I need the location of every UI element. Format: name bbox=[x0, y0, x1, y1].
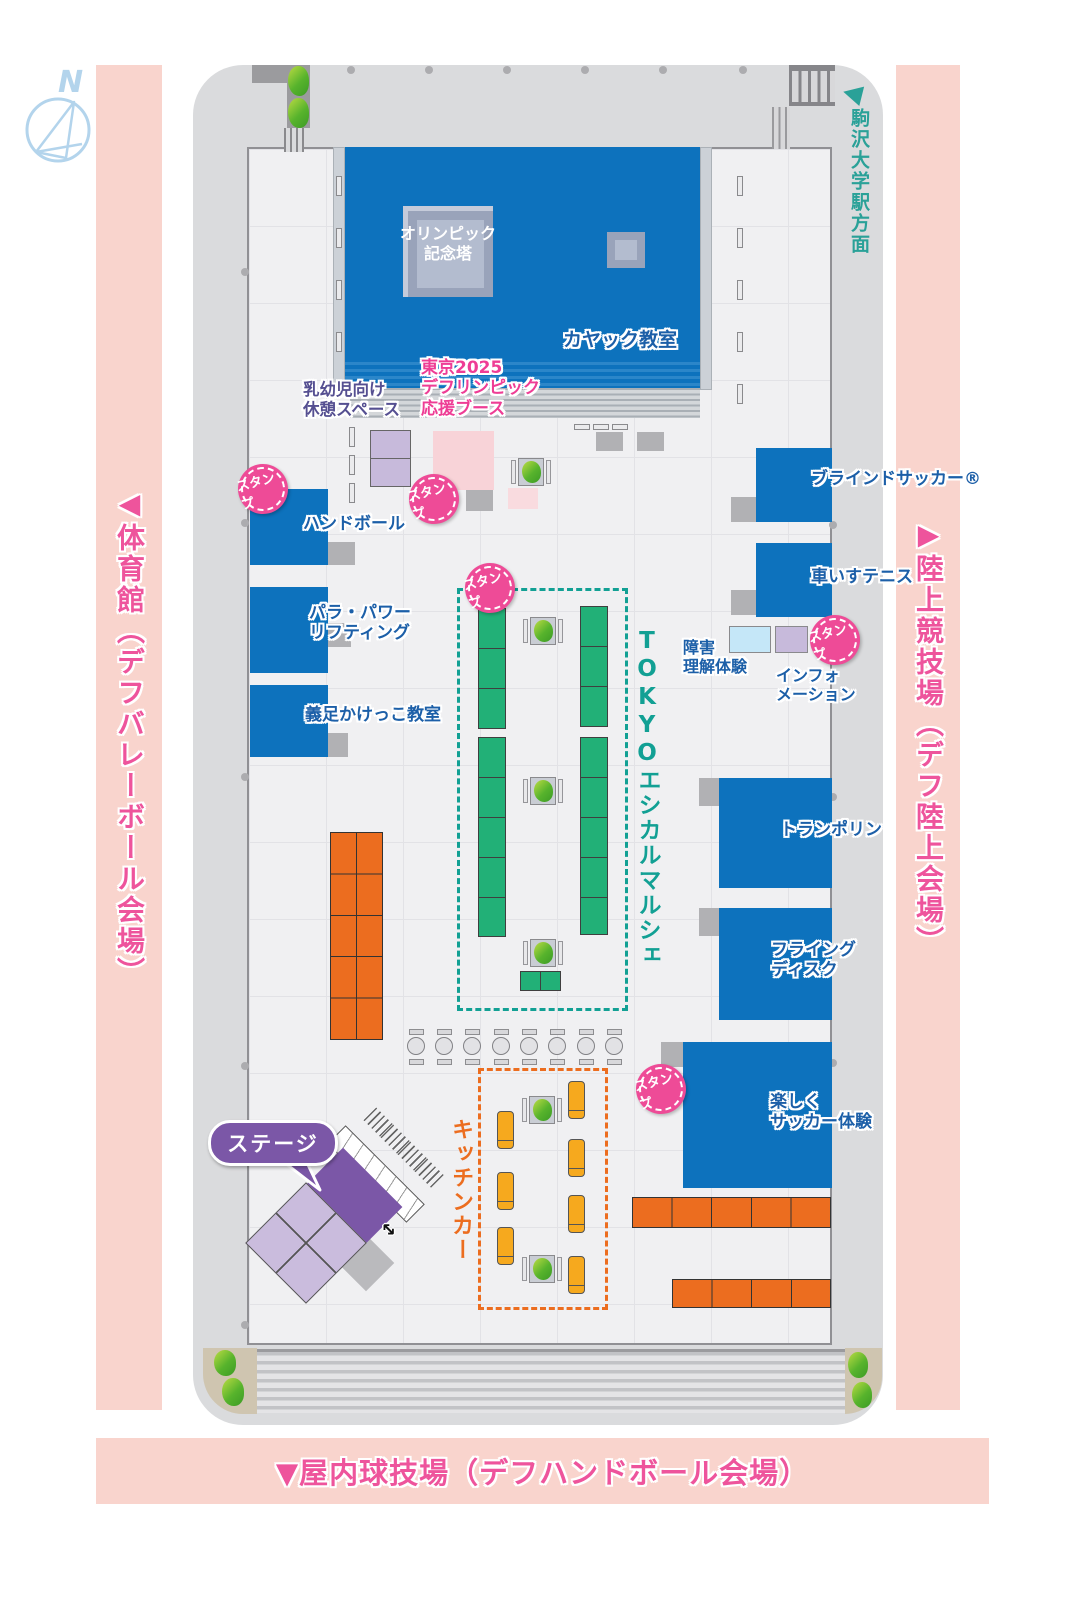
marche-stall-column bbox=[478, 608, 506, 729]
blind-soccer-label: ブラインドサッカー® bbox=[811, 469, 981, 489]
lamp-dot bbox=[347, 66, 355, 74]
prosthetic-running-label: 義足かけっこ教室 bbox=[305, 705, 441, 725]
booth-orange-block bbox=[330, 832, 383, 1040]
marche-stall-column bbox=[580, 606, 608, 727]
bench-icon bbox=[737, 228, 743, 248]
tree-icon bbox=[526, 936, 560, 970]
booth-information bbox=[775, 626, 808, 653]
stairs-icon bbox=[772, 107, 790, 149]
bush-icon bbox=[848, 1352, 868, 1378]
kitchen-car-icon bbox=[497, 1227, 514, 1265]
bush-icon bbox=[288, 66, 309, 96]
pond-deck bbox=[700, 147, 712, 390]
marche-stall-column bbox=[478, 737, 506, 937]
bush-icon bbox=[288, 98, 309, 128]
bench-icon bbox=[737, 384, 743, 404]
booth-shadow-tab bbox=[731, 497, 756, 522]
stairs-icon bbox=[789, 65, 835, 106]
booth-shadow-tab bbox=[699, 908, 719, 936]
kiosk-box bbox=[596, 432, 623, 451]
fun-soccer-label: 楽しく サッカー体験 bbox=[770, 1092, 872, 1133]
para-powerlifting-label: パラ・パワー リフティング bbox=[309, 603, 411, 644]
bottom-venue-label: ▼屋内球技場（デフハンドボール会場） bbox=[276, 1450, 809, 1492]
round-table-icon bbox=[462, 1029, 484, 1065]
round-table-icon bbox=[547, 1029, 569, 1065]
lamp-dot bbox=[739, 66, 747, 74]
round-table-icon bbox=[604, 1029, 626, 1065]
left-venue-label: ◀体育館（デフバレーボール会場） bbox=[109, 487, 149, 988]
round-table-icon bbox=[434, 1029, 456, 1065]
tower-label: オリンピック 記念塔 bbox=[393, 224, 503, 264]
bench-icon bbox=[349, 483, 355, 503]
bush-icon bbox=[852, 1382, 872, 1408]
lamp-dot bbox=[241, 1062, 249, 1070]
bush-icon bbox=[214, 1350, 236, 1376]
booth-shadow-tab bbox=[466, 490, 493, 511]
tree-icon bbox=[525, 1093, 559, 1127]
pond-platform bbox=[607, 232, 645, 268]
bench-icon bbox=[336, 176, 342, 196]
bench-icon bbox=[574, 424, 590, 430]
booth-shadow-tab bbox=[328, 542, 355, 565]
booth-shadow-tab bbox=[328, 733, 348, 757]
bottom-stairs bbox=[257, 1349, 845, 1413]
kitchen-car-icon bbox=[568, 1081, 585, 1119]
lamp-dot bbox=[659, 66, 667, 74]
tree-icon bbox=[525, 1252, 559, 1286]
bench-icon bbox=[349, 455, 355, 475]
booth-orange-row bbox=[672, 1279, 831, 1308]
kitchen-car-label: キッチンカー bbox=[444, 1118, 476, 1262]
booth-small-pink bbox=[508, 488, 538, 509]
bench-icon bbox=[737, 280, 743, 300]
ethical-marche-label: TOKYOエシカルマルシェ bbox=[630, 628, 664, 968]
bench-icon bbox=[349, 427, 355, 447]
information-label: インフォ メーション bbox=[776, 666, 856, 704]
kitchen-car-icon bbox=[497, 1111, 514, 1149]
station-direction-label: 駒沢大学駅方面 bbox=[846, 108, 873, 255]
round-table-icon bbox=[576, 1029, 598, 1065]
compass-n-label: N bbox=[58, 65, 83, 100]
stage-bubble: ステージ bbox=[208, 1120, 338, 1166]
flying-disc-label: フライング ディスク bbox=[771, 940, 856, 981]
lamp-dot bbox=[829, 521, 837, 529]
deaflympics-support-label: 東京2025 デフリンピック 応援ブース bbox=[421, 358, 540, 419]
kitchen-car-icon bbox=[568, 1256, 585, 1294]
left-venue-bar: ◀体育館（デフバレーボール会場） bbox=[96, 65, 162, 1410]
handball-label: ハンドボール bbox=[303, 514, 405, 534]
kayak-class-label: カヤック教室 bbox=[563, 329, 677, 352]
tree-icon bbox=[514, 455, 548, 489]
lamp-dot bbox=[581, 66, 589, 74]
trampoline-label: トランポリン bbox=[780, 820, 882, 840]
bench-icon bbox=[593, 424, 609, 430]
lamp-dot bbox=[503, 66, 511, 74]
marche-stall-pair bbox=[520, 971, 561, 991]
right-venue-bar: ▶陸上競技場（デフ陸上会場） bbox=[896, 65, 960, 1410]
infant-rest-label: 乳幼児向け 休憩スペース bbox=[303, 380, 400, 420]
lamp-dot bbox=[241, 519, 249, 527]
booth-shadow-tab bbox=[731, 590, 756, 615]
stairs-icon bbox=[284, 128, 304, 152]
booth-infant-rest-space bbox=[370, 430, 411, 487]
venue-map-page: N ◀体育館（デフバレーボール会場） ▶陸上競技場（デフ陸上会場） ▼屋内球技場… bbox=[0, 0, 1069, 1600]
bottom-venue-bar: ▼屋内球技場（デフハンドボール会場） bbox=[96, 1438, 989, 1504]
bench-icon bbox=[612, 424, 628, 430]
disability-experience-label: 障害 理解体験 bbox=[683, 638, 747, 676]
round-table-icon bbox=[519, 1029, 541, 1065]
kitchen-car-icon bbox=[568, 1139, 585, 1177]
bench-icon bbox=[737, 176, 743, 196]
bench-icon bbox=[737, 332, 743, 352]
pond bbox=[345, 147, 700, 388]
kitchen-car-icon bbox=[497, 1172, 514, 1210]
bench-icon bbox=[336, 228, 342, 248]
kitchen-car-icon bbox=[568, 1195, 585, 1233]
lamp-dot bbox=[425, 66, 433, 74]
lamp-dot bbox=[241, 773, 249, 781]
booth-shadow-tab bbox=[699, 778, 719, 806]
bench-icon bbox=[336, 332, 342, 352]
tree-icon bbox=[526, 614, 560, 648]
booth-orange-row bbox=[632, 1197, 831, 1228]
stage-label: ステージ bbox=[227, 1128, 319, 1158]
round-table-icon bbox=[406, 1029, 428, 1065]
kiosk-box bbox=[637, 432, 664, 451]
tree-icon bbox=[526, 774, 560, 808]
bush-icon bbox=[222, 1378, 244, 1406]
lamp-dot bbox=[241, 1321, 249, 1329]
bench-icon bbox=[336, 280, 342, 300]
lamp-dot bbox=[241, 268, 249, 276]
wheelchair-tennis-label: 車いすテニス bbox=[811, 567, 913, 587]
right-venue-label: ▶陸上競技場（デフ陸上会場） bbox=[908, 518, 948, 957]
marche-stall-column bbox=[580, 737, 608, 935]
compass-icon: N bbox=[20, 60, 96, 164]
round-table-icon bbox=[491, 1029, 513, 1065]
